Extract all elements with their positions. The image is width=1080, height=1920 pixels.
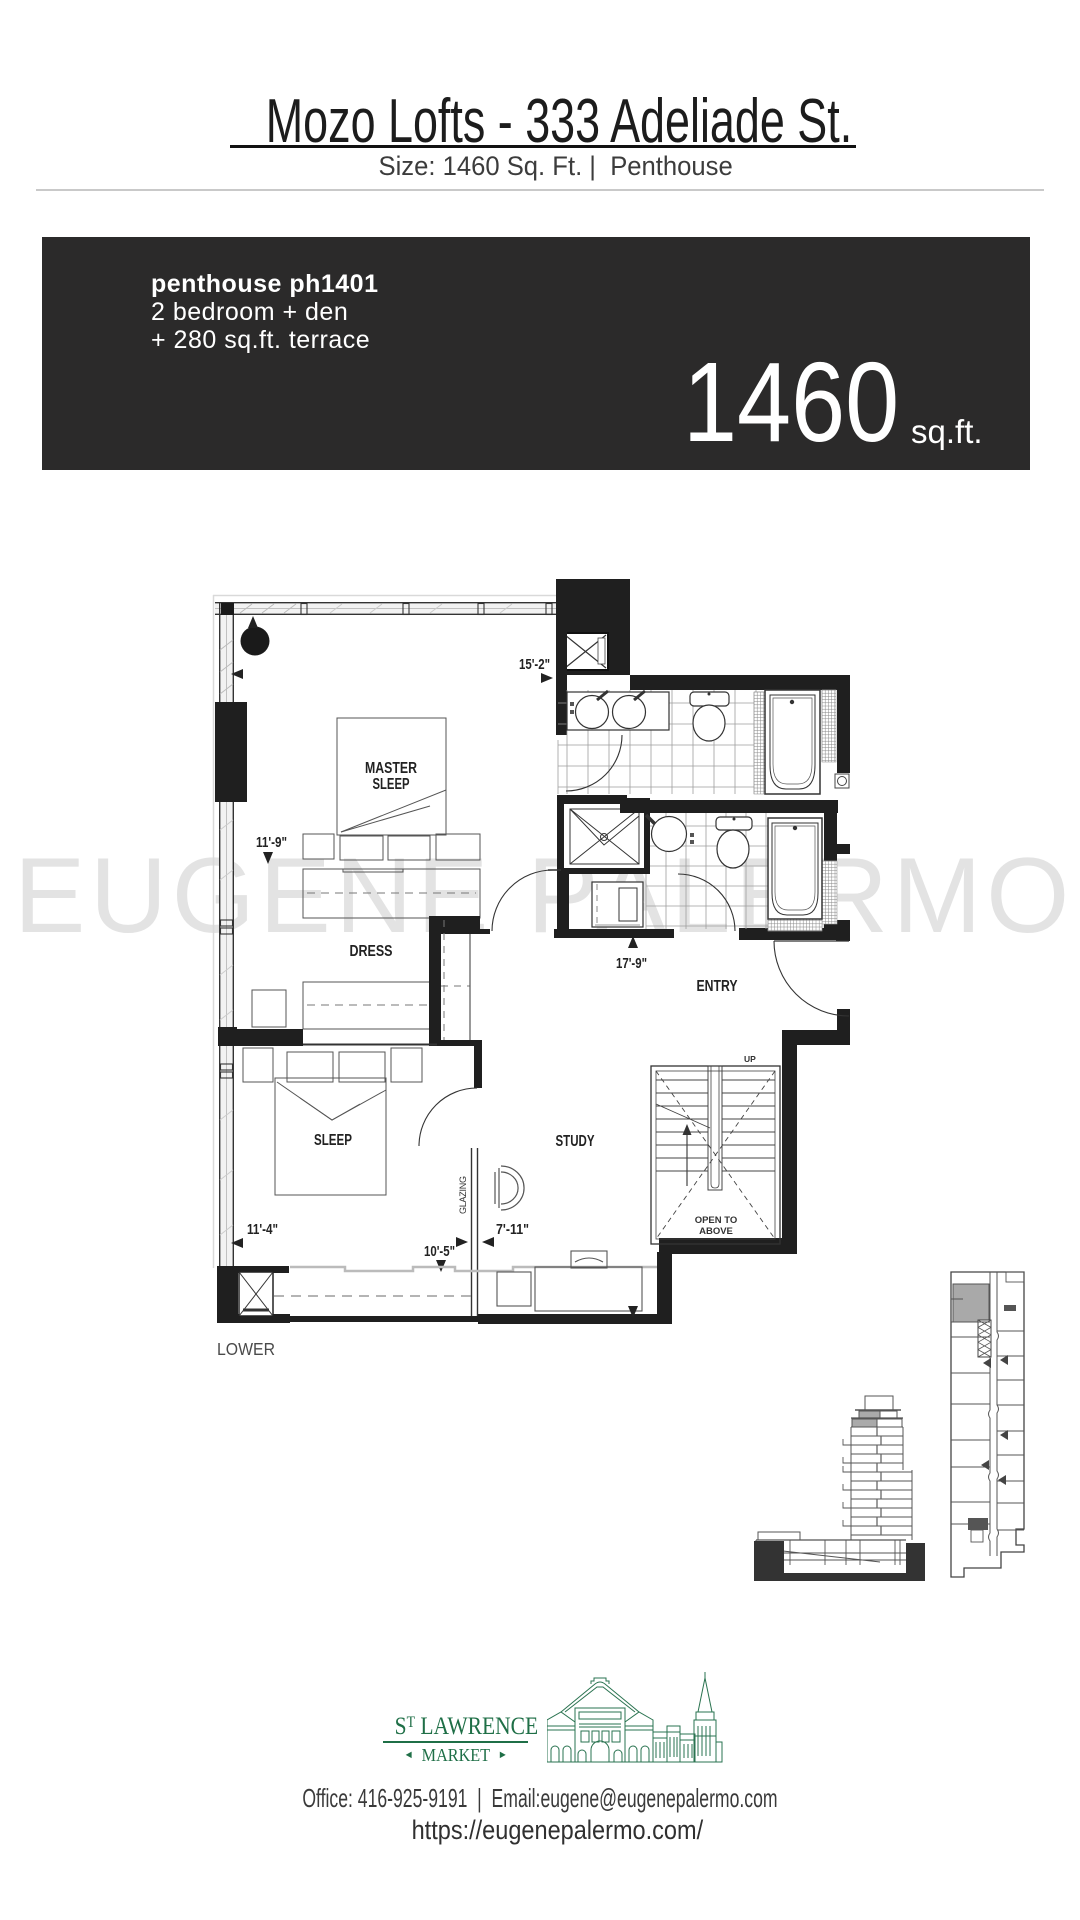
- svg-text:GLAZING: GLAZING: [458, 1176, 468, 1214]
- svg-text:LOWER: LOWER: [217, 1339, 275, 1359]
- svg-text:10'-5": 10'-5": [424, 1243, 455, 1260]
- svg-text:UP: UP: [744, 1054, 756, 1064]
- svg-text:11'-9": 11'-9": [256, 834, 287, 851]
- svg-text:SLEEP: SLEEP: [373, 776, 410, 793]
- svg-text:SLEEP: SLEEP: [314, 1132, 352, 1149]
- svg-text:17'-9": 17'-9": [616, 955, 647, 972]
- svg-text:7'-11": 7'-11": [496, 1221, 529, 1238]
- svg-text:DRESS: DRESS: [350, 943, 393, 960]
- svg-text:11'-4": 11'-4": [247, 1221, 278, 1238]
- svg-text:ENTRY: ENTRY: [697, 978, 738, 995]
- svg-text:STUDY: STUDY: [556, 1133, 595, 1150]
- svg-text:OPEN TO: OPEN TO: [695, 1215, 738, 1226]
- svg-text:MASTER: MASTER: [365, 760, 417, 777]
- svg-text:ABOVE: ABOVE: [699, 1226, 733, 1237]
- svg-text:15'-2": 15'-2": [519, 656, 550, 673]
